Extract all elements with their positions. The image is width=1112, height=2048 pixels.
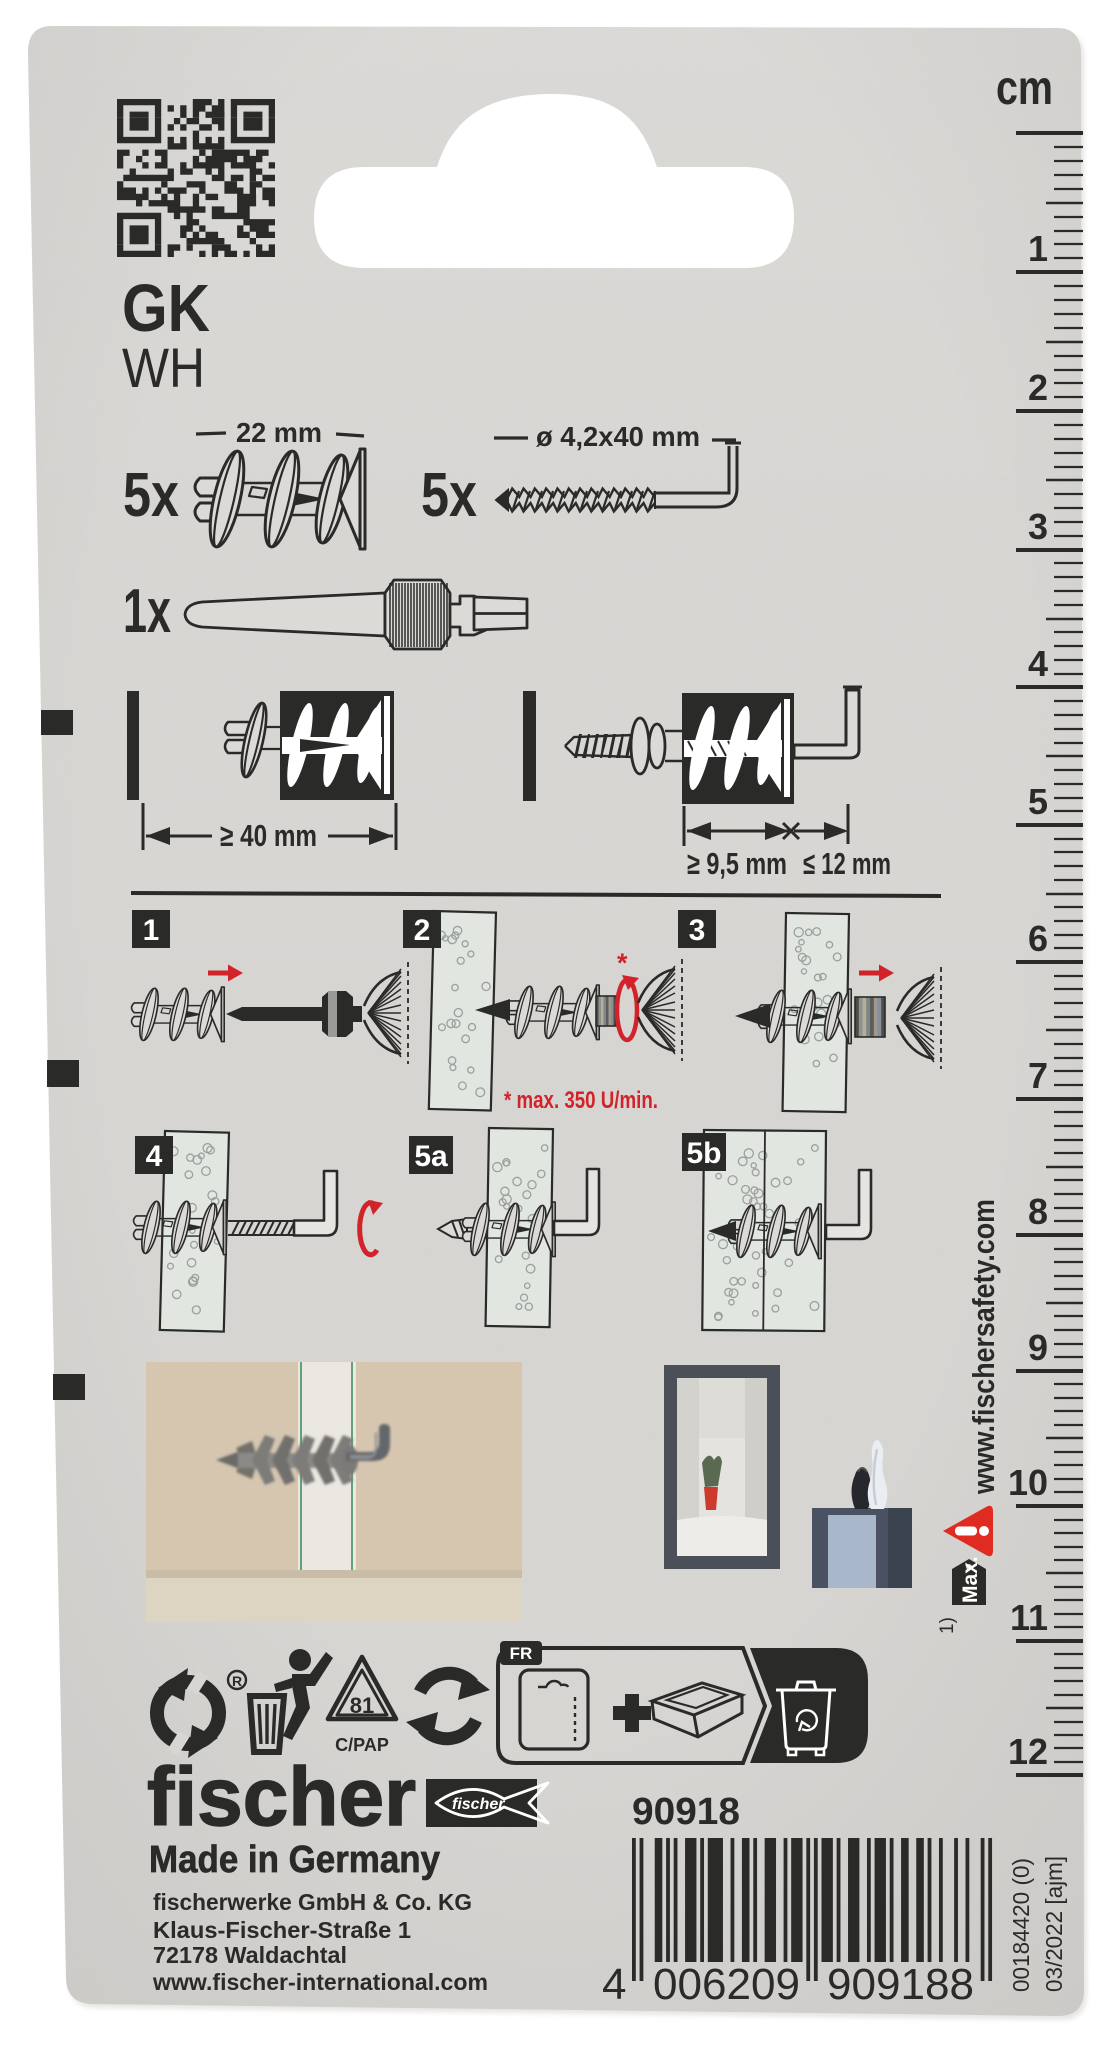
svg-text:11: 11: [1010, 1597, 1048, 1638]
svg-text:10: 10: [1008, 1462, 1048, 1503]
svg-text:Made in Germany: Made in Germany: [149, 1839, 440, 1881]
svg-text:22 mm: 22 mm: [236, 417, 322, 448]
svg-text:≤ 12 mm: ≤ 12 mm: [803, 846, 891, 881]
svg-text:fischerwerke GmbH & Co. KG: fischerwerke GmbH & Co. KG: [153, 1889, 472, 1915]
svg-text:03/2022 [ajm]: 03/2022 [ajm]: [1041, 1856, 1067, 1992]
svg-text:12: 12: [1008, 1731, 1048, 1772]
svg-text:1: 1: [143, 914, 160, 947]
svg-text:006209: 006209: [653, 1960, 800, 2009]
svg-text:90918: 90918: [632, 1791, 740, 1833]
svg-text:4: 4: [602, 1960, 626, 2009]
svg-text:fischer: fischer: [147, 1750, 416, 1843]
svg-text:1x: 1x: [123, 577, 171, 646]
svg-text:5x: 5x: [421, 461, 477, 530]
svg-text:7: 7: [1028, 1055, 1048, 1096]
svg-text:4: 4: [146, 1140, 163, 1173]
svg-text:2: 2: [1028, 367, 1048, 408]
svg-text:* max. 350 U/min.: * max. 350 U/min.: [504, 1087, 658, 1114]
svg-text:5b: 5b: [686, 1137, 721, 1170]
svg-text:cm: cm: [996, 62, 1053, 115]
svg-text:5x: 5x: [123, 461, 179, 530]
svg-text:Klaus-Fischer-Straße 1: Klaus-Fischer-Straße 1: [153, 1917, 411, 1943]
svg-text:fischer: fischer: [452, 1796, 505, 1813]
svg-text:3: 3: [689, 914, 706, 947]
svg-text:9: 9: [1028, 1327, 1048, 1368]
svg-text:WH: WH: [122, 336, 205, 399]
svg-text:72178 Waldachtal: 72178 Waldachtal: [153, 1942, 347, 1968]
svg-text:GK: GK: [122, 271, 210, 346]
svg-text:≥ 40 mm: ≥ 40 mm: [220, 818, 317, 853]
svg-text:≥ 9,5 mm: ≥ 9,5 mm: [687, 846, 787, 881]
svg-text:R: R: [232, 1673, 242, 1689]
svg-text:00184420 (0): 00184420 (0): [1008, 1858, 1034, 1992]
svg-text:8: 8: [1028, 1191, 1048, 1232]
svg-text:4: 4: [1028, 643, 1048, 684]
svg-text:1): 1): [937, 1617, 958, 1634]
svg-text:81: 81: [350, 1693, 374, 1718]
svg-text:5: 5: [1028, 781, 1048, 822]
svg-text:6: 6: [1028, 918, 1048, 959]
svg-text:www.fischersafety.com: www.fischersafety.com: [966, 1199, 1001, 1495]
svg-text:FR: FR: [510, 1644, 533, 1663]
svg-text:3: 3: [1028, 506, 1048, 547]
svg-text:ø 4,2x40 mm: ø 4,2x40 mm: [536, 421, 700, 452]
svg-text:*: *: [617, 948, 628, 978]
svg-text:1: 1: [1028, 228, 1048, 269]
svg-text:2: 2: [414, 914, 431, 947]
svg-text:www.fischer-international.com: www.fischer-international.com: [152, 1969, 488, 1995]
svg-text:909188: 909188: [827, 1960, 974, 2009]
svg-text:5a: 5a: [414, 1140, 448, 1173]
svg-text:Max.: Max.: [959, 1556, 982, 1603]
